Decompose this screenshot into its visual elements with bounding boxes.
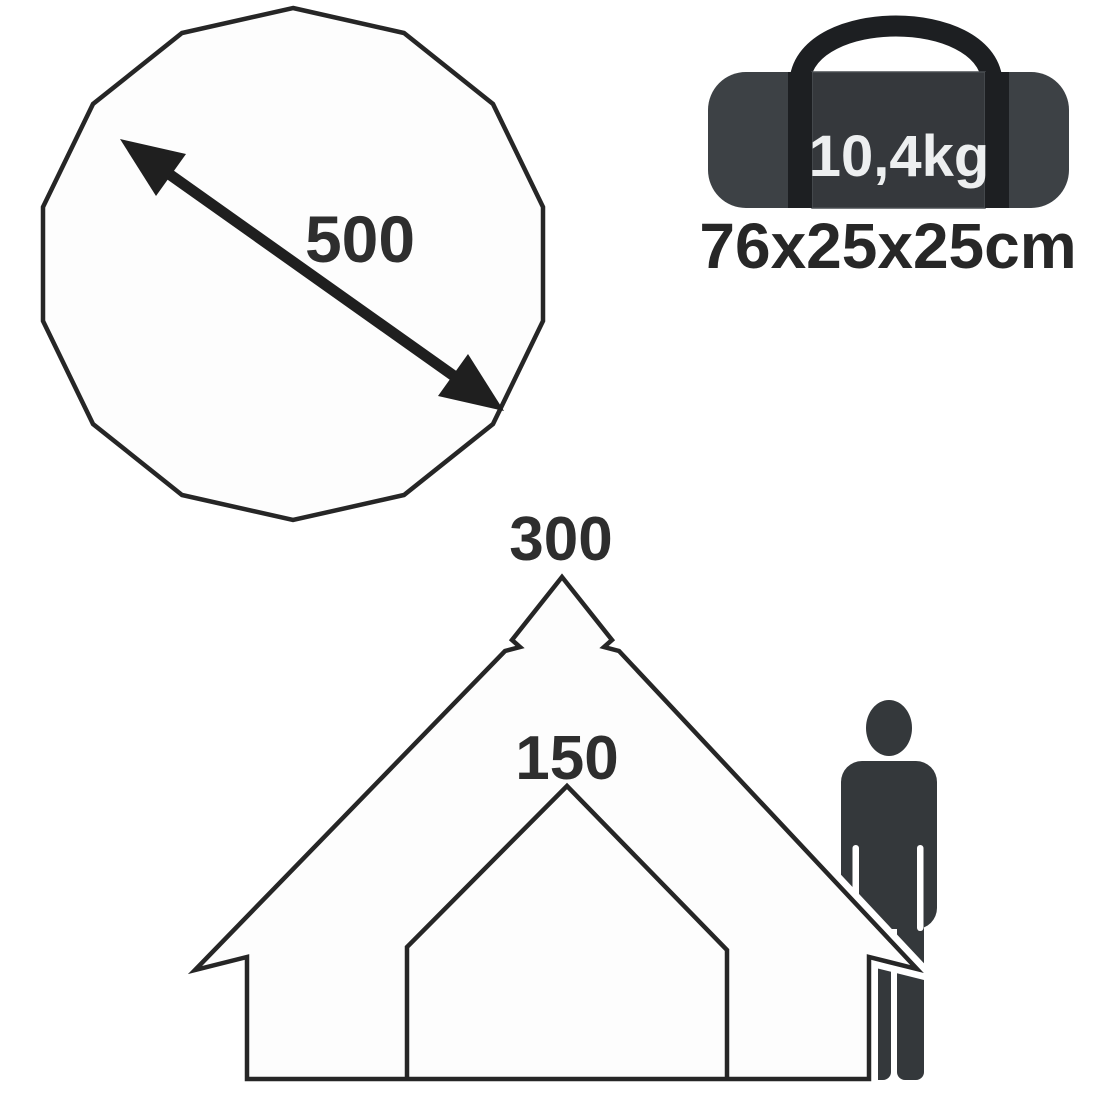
- bag-weight-label: 10,4kg: [809, 124, 990, 189]
- tent-floorplan: 500: [43, 8, 543, 520]
- person-arm-slit-right: [917, 845, 924, 931]
- bag-dimensions-label: 76x25x25cm: [699, 210, 1076, 282]
- diameter-label: 500: [305, 202, 415, 276]
- bell-tent-silhouette-icon: 300 150: [195, 505, 917, 1079]
- carry-bag-icon: 10,4kg: [708, 26, 1069, 208]
- tent-height-label: 300: [509, 505, 612, 574]
- person-head: [866, 700, 912, 756]
- door-height-label: 150: [515, 724, 618, 793]
- tent-outline: [195, 577, 917, 1079]
- product-dimensions-diagram: 500 10,4kg 76x25x25cm 300 150: [0, 0, 1100, 1100]
- diagram-canvas: 500 10,4kg 76x25x25cm 300 150: [0, 0, 1100, 1100]
